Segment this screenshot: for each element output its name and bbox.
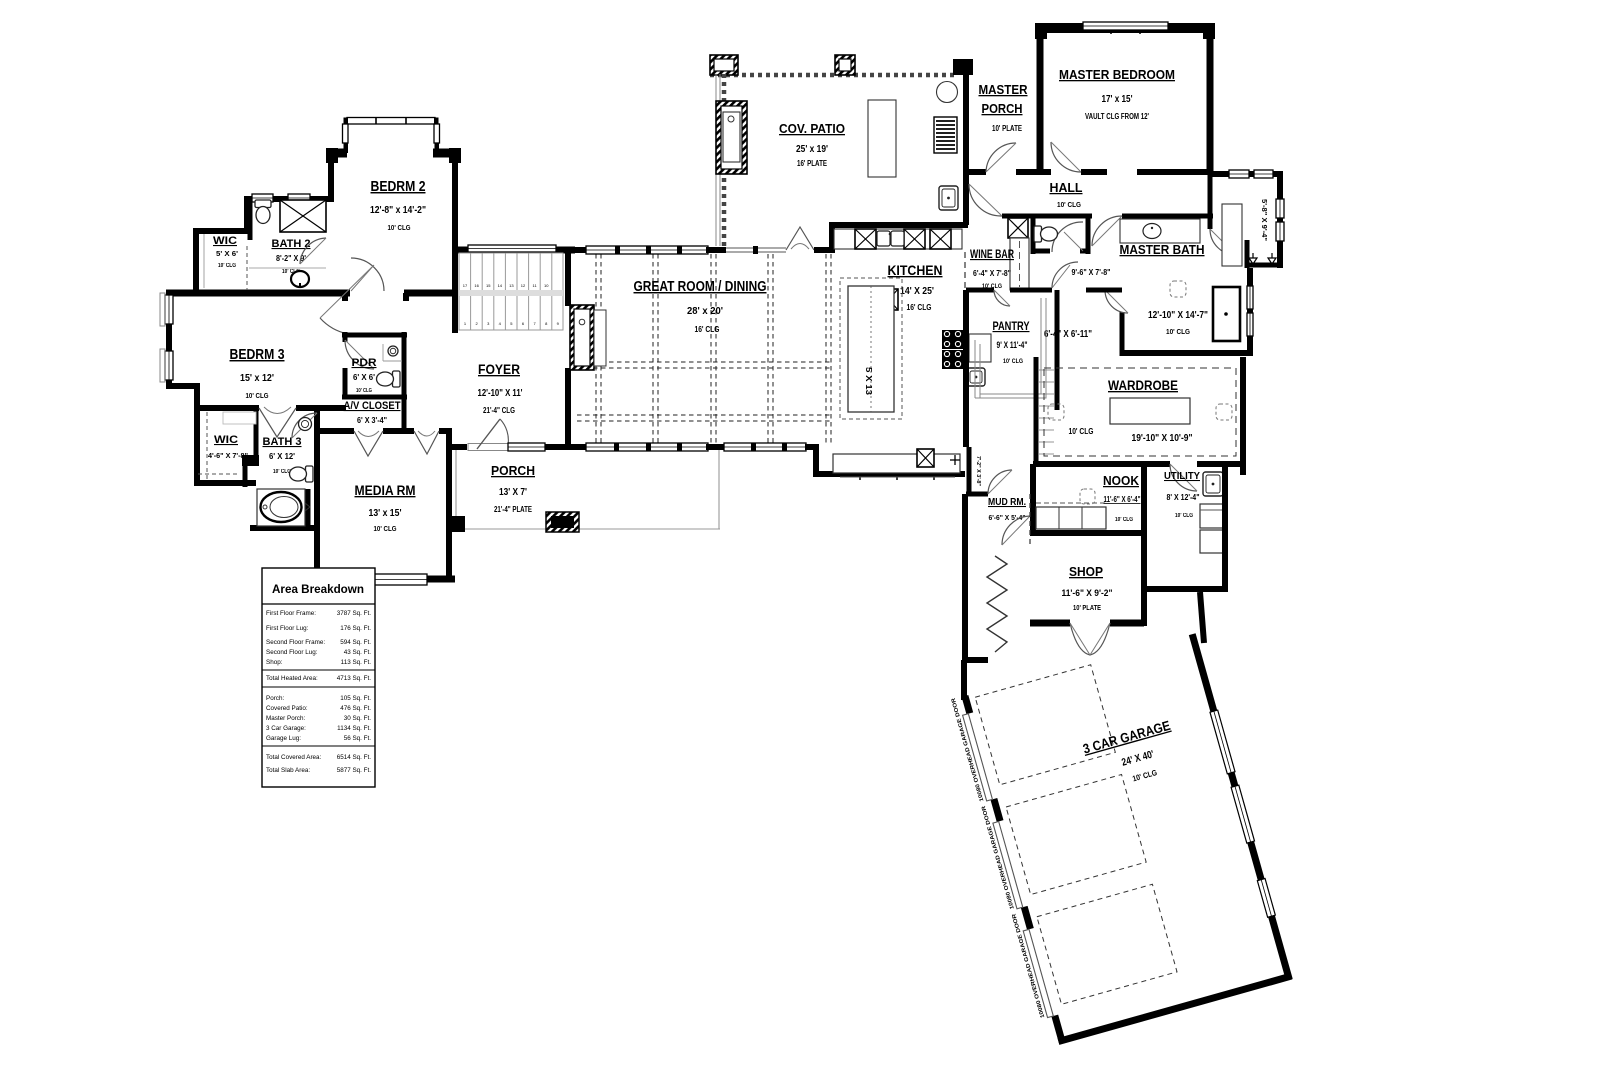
svg-text:10' CLG: 10' CLG: [388, 223, 411, 232]
svg-text:UTILITY: UTILITY: [1164, 470, 1200, 482]
svg-text:10' CLG: 10' CLG: [1115, 517, 1133, 523]
svg-text:12'-10" X 11': 12'-10" X 11': [478, 387, 523, 399]
svg-text:19'-10" X 10'-9": 19'-10" X 10'-9": [1132, 432, 1193, 444]
svg-text:WIC: WIC: [214, 434, 238, 446]
svg-text:28' x 20': 28' x 20': [687, 305, 723, 317]
svg-text:15: 15: [486, 283, 491, 288]
svg-text:6' X 3'-4": 6' X 3'-4": [357, 415, 387, 425]
svg-text:Covered Patio:: Covered Patio:: [266, 705, 308, 712]
svg-text:105 Sq. Ft.: 105 Sq. Ft.: [340, 695, 371, 702]
svg-text:WARDROBE: WARDROBE: [1108, 378, 1178, 393]
svg-text:Total Slab Area:: Total Slab Area:: [266, 767, 310, 774]
svg-text:BATH 2: BATH 2: [272, 238, 311, 250]
svg-text:KITCHEN: KITCHEN: [888, 263, 943, 278]
svg-text:9' X 11'-4": 9' X 11'-4": [997, 340, 1028, 350]
svg-text:Porch:: Porch:: [266, 695, 284, 702]
svg-text:PORCH: PORCH: [491, 463, 535, 478]
svg-text:12'-8" x 14'-2": 12'-8" x 14'-2": [370, 204, 426, 216]
svg-text:43 Sq. Ft.: 43 Sq. Ft.: [344, 649, 372, 656]
svg-text:COV. PATIO: COV. PATIO: [779, 121, 845, 136]
svg-text:11'-6" X 9'-2": 11'-6" X 9'-2": [1062, 588, 1113, 599]
svg-text:10' CLG: 10' CLG: [1057, 200, 1081, 209]
svg-text:10' CLG: 10' CLG: [246, 391, 269, 400]
svg-text:10' CLG: 10' CLG: [1003, 358, 1023, 365]
svg-text:10' CLG: 10' CLG: [356, 388, 372, 394]
svg-text:Shop:: Shop:: [266, 659, 283, 666]
svg-text:MUD RM.: MUD RM.: [988, 496, 1026, 508]
svg-text:12'-10" X 14'-7": 12'-10" X 14'-7": [1148, 309, 1208, 321]
svg-text:NOOK: NOOK: [1103, 474, 1139, 488]
svg-text:VAULT CLG FROM 12': VAULT CLG FROM 12': [1085, 112, 1149, 121]
svg-text:10' CLG: 10' CLG: [273, 469, 291, 475]
svg-text:56 Sq. Ft.: 56 Sq. Ft.: [344, 735, 372, 742]
svg-text:6'-4" X 6'-11": 6'-4" X 6'-11": [1044, 329, 1092, 340]
svg-text:8' X 12'-4": 8' X 12'-4": [1167, 493, 1200, 502]
svg-text:MASTER: MASTER: [979, 82, 1029, 97]
svg-text:10' CLG: 10' CLG: [218, 263, 236, 269]
svg-text:16: 16: [474, 283, 479, 288]
svg-text:16' CLG: 16' CLG: [907, 303, 932, 312]
svg-text:6514 Sq. Ft.: 6514 Sq. Ft.: [337, 754, 372, 761]
svg-text:Total Heated Area:: Total Heated Area:: [266, 675, 318, 682]
svg-text:PORCH: PORCH: [982, 101, 1023, 116]
svg-text:PDR: PDR: [352, 357, 377, 369]
svg-text:15' x 12': 15' x 12': [240, 372, 274, 384]
svg-text:10' PLATE: 10' PLATE: [1073, 603, 1101, 612]
svg-text:5' X 6': 5' X 6': [216, 249, 238, 258]
svg-text:SHOP: SHOP: [1069, 564, 1103, 579]
svg-text:Area Breakdown: Area Breakdown: [272, 582, 364, 596]
svg-text:11'-6" X 6'-4": 11'-6" X 6'-4": [1104, 495, 1141, 504]
svg-text:476 Sq. Ft.: 476 Sq. Ft.: [340, 705, 371, 712]
svg-text:10: 10: [544, 283, 549, 288]
svg-text:6'-4" X 7'-8": 6'-4" X 7'-8": [973, 268, 1011, 278]
svg-text:13' x 15': 13' x 15': [369, 507, 402, 519]
svg-text:A/V CLOSET: A/V CLOSET: [344, 400, 401, 412]
svg-text:13: 13: [509, 283, 514, 288]
svg-text:First Floor Lug:: First Floor Lug:: [266, 625, 309, 632]
svg-text:17' x 15': 17' x 15': [1102, 94, 1133, 105]
svg-text:Garage Lug:: Garage Lug:: [266, 735, 301, 742]
svg-text:PANTRY: PANTRY: [993, 321, 1030, 333]
svg-text:6' X 12': 6' X 12': [269, 451, 295, 461]
svg-text:6' X 6': 6' X 6': [353, 372, 375, 382]
svg-text:HALL: HALL: [1050, 181, 1083, 195]
svg-text:10' CLG: 10' CLG: [1166, 327, 1190, 336]
svg-text:14' X 25': 14' X 25': [900, 285, 934, 297]
svg-text:10' PLATE: 10' PLATE: [992, 124, 1023, 133]
svg-text:176 Sq. Ft.: 176 Sq. Ft.: [340, 625, 371, 632]
svg-text:First Floor Frame:: First Floor Frame:: [266, 610, 316, 617]
svg-text:12: 12: [521, 283, 526, 288]
svg-text:3 Car Garage:: 3 Car Garage:: [266, 725, 306, 732]
svg-text:1134 Sq. Ft.: 1134 Sq. Ft.: [337, 725, 371, 732]
svg-text:5 X 13: 5 X 13: [864, 367, 874, 395]
svg-text:21'-4" PLATE: 21'-4" PLATE: [494, 505, 533, 514]
svg-text:9'-6" X 7'-8": 9'-6" X 7'-8": [1072, 267, 1111, 277]
svg-text:16' CLG: 16' CLG: [695, 325, 720, 334]
svg-text:4'-6" X 7'-8": 4'-6" X 7'-8": [208, 451, 248, 460]
svg-text:13' X 7': 13' X 7': [499, 486, 527, 498]
svg-text:5877 Sq. Ft.: 5877 Sq. Ft.: [337, 767, 372, 774]
svg-text:10' CLG: 10' CLG: [1069, 427, 1094, 436]
svg-text:MASTER BATH: MASTER BATH: [1120, 242, 1205, 257]
svg-text:113 Sq. Ft.: 113 Sq. Ft.: [341, 659, 372, 666]
svg-text:Second Floor Lug:: Second Floor Lug:: [266, 649, 318, 656]
svg-text:3787 Sq. Ft.: 3787 Sq. Ft.: [337, 610, 372, 617]
svg-text:BATH 3: BATH 3: [263, 436, 302, 448]
svg-text:MEDIA RM: MEDIA RM: [355, 483, 416, 498]
svg-text:BEDRM 3: BEDRM 3: [230, 347, 285, 363]
svg-text:WINE BAR: WINE BAR: [970, 249, 1015, 261]
svg-text:16' PLATE: 16' PLATE: [797, 159, 828, 168]
svg-text:Master Porch:: Master Porch:: [266, 715, 305, 722]
svg-text:WIC: WIC: [213, 235, 237, 247]
svg-text:25' x 19': 25' x 19': [796, 144, 828, 155]
svg-text:17: 17: [463, 283, 468, 288]
svg-text:10' CLG: 10' CLG: [1175, 513, 1193, 519]
svg-text:Second Floor Frame:: Second Floor Frame:: [266, 639, 325, 646]
svg-text:FOYER: FOYER: [478, 362, 520, 377]
svg-text:14: 14: [498, 283, 503, 288]
svg-text:4713 Sq. Ft.: 4713 Sq. Ft.: [337, 675, 372, 682]
svg-text:21'-4" CLG: 21'-4" CLG: [483, 406, 515, 415]
svg-text:5'-8" X 9'-4": 5'-8" X 9'-4": [1260, 199, 1269, 241]
svg-text:10' CLG: 10' CLG: [374, 524, 397, 533]
svg-text:594 Sq. Ft.: 594 Sq. Ft.: [340, 639, 371, 646]
svg-text:BEDRM 2: BEDRM 2: [371, 179, 426, 195]
svg-text:Total Covered Area:: Total Covered Area:: [266, 754, 322, 761]
svg-text:GREAT ROOM / DINING: GREAT ROOM / DINING: [634, 279, 767, 295]
svg-text:30 Sq. Ft.: 30 Sq. Ft.: [344, 715, 372, 722]
svg-text:MASTER BEDROOM: MASTER BEDROOM: [1059, 67, 1175, 82]
svg-text:7'-2" X 3'-8": 7'-2" X 3'-8": [975, 456, 981, 486]
